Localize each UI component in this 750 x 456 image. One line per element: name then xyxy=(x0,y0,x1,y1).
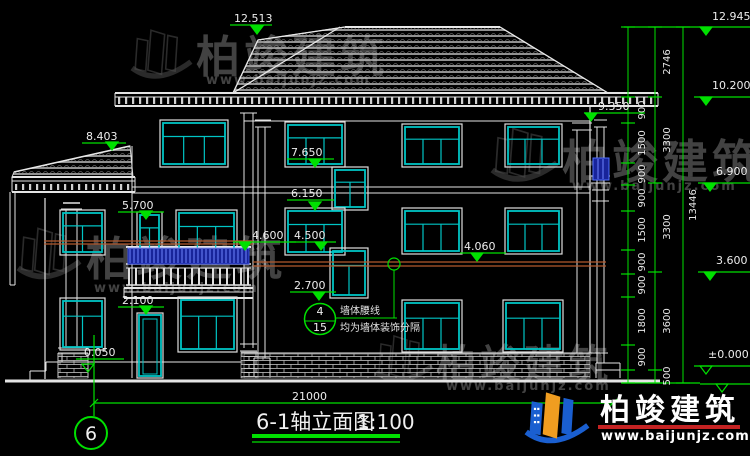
eave-dentil xyxy=(384,97,386,104)
level-flag: 12.945 xyxy=(624,10,750,35)
elevation-marker: 2.700 xyxy=(290,279,336,300)
eave-dentil xyxy=(113,184,115,190)
logo-url-text: www.baijunjz.com xyxy=(601,429,750,444)
eave-dentil xyxy=(167,97,169,104)
brick-plinth xyxy=(244,354,590,378)
elevation-triangle-icon xyxy=(704,272,716,280)
callout-note-line1: 墙体腰线 xyxy=(340,304,380,317)
eave-dentil xyxy=(300,97,302,104)
eave-dentil xyxy=(475,97,477,104)
level-flag: 3.600 xyxy=(698,254,750,280)
eave-dentil xyxy=(412,97,414,104)
elevation-marker: 5.700 xyxy=(118,199,164,219)
eave-dentil xyxy=(293,97,295,104)
eave-dentil xyxy=(244,97,246,104)
eave-dentil xyxy=(391,97,393,104)
callout-bottom-number: 15 xyxy=(313,321,327,334)
title-block: 6-1轴立面图1:1006 xyxy=(85,410,415,445)
elevation-text: 9.350 xyxy=(598,100,630,113)
eave-dentil xyxy=(356,97,358,104)
eave-dentil xyxy=(510,97,512,104)
eave-dentil xyxy=(160,97,162,104)
eave-dentil xyxy=(405,97,407,104)
eave-dentil xyxy=(524,97,526,104)
eave-dentil xyxy=(419,97,421,104)
eave-dentil xyxy=(461,97,463,104)
elevation-triangle-icon xyxy=(700,27,712,35)
callout-note-line2: 均为墙体装饰分隔 xyxy=(340,321,420,334)
cad-canvas: 柏竣建筑www.baijunjz.com柏竣建筑www.baijunjz.com… xyxy=(0,0,750,456)
flag-text: ±0.000 xyxy=(708,348,749,361)
window xyxy=(60,298,105,350)
elevation-text: 5.700 xyxy=(122,199,154,212)
elevation-text: 4.060 xyxy=(464,240,496,253)
eave-dentil xyxy=(349,97,351,104)
eave-dentil xyxy=(85,184,87,190)
eave-dentil xyxy=(335,97,337,104)
dim-text: 500 xyxy=(662,366,673,385)
roof-tile-area xyxy=(12,146,133,177)
entry-door xyxy=(137,313,163,378)
eave-dentil xyxy=(223,97,225,104)
dim-text: 3300 xyxy=(662,214,673,239)
elevation-marker: 8.403 xyxy=(82,130,126,150)
elevation-text: 2.100 xyxy=(122,294,154,307)
eave-dentil xyxy=(328,97,330,104)
elevation-text: 4.600 xyxy=(252,229,284,242)
eave-dentil xyxy=(377,97,379,104)
eave-dentil xyxy=(286,97,288,104)
eave-dentil xyxy=(426,97,428,104)
brand-logo: 柏竣建筑www.baijunjz.com xyxy=(526,392,750,444)
eave-dentil xyxy=(120,184,122,190)
dim-text: 3600 xyxy=(662,308,673,333)
downspout-collar-selected xyxy=(593,158,609,180)
annotation-circle xyxy=(388,258,400,270)
eave-dentil xyxy=(531,97,533,104)
window xyxy=(178,297,237,352)
eave-dentil xyxy=(587,97,589,104)
dim-text: 900 xyxy=(637,275,648,294)
eave-dentil xyxy=(132,97,134,104)
eave-dentil xyxy=(552,97,554,104)
elevation-marker: 9.350 xyxy=(584,100,645,121)
eave-dentil xyxy=(139,97,141,104)
eave-dentil xyxy=(181,97,183,104)
eave-dentil xyxy=(517,97,519,104)
eave-dentil xyxy=(503,97,505,104)
dim-text: 13446 xyxy=(688,189,699,221)
level-flag: ±0.000 xyxy=(694,348,750,374)
eave-dentil xyxy=(127,184,129,190)
roof-tile-area xyxy=(233,27,608,93)
dim-text: 1500 xyxy=(637,130,648,155)
eave-dentil xyxy=(230,97,232,104)
eave-dentil xyxy=(468,97,470,104)
eave-dentil xyxy=(566,97,568,104)
eave-dentil xyxy=(216,97,218,104)
eave-dentil xyxy=(99,184,101,190)
eave-dentil xyxy=(559,97,561,104)
elevation-triangle-icon xyxy=(471,253,483,261)
eave-dentil xyxy=(594,97,596,104)
cad-elevation-drawing: 柏竣建筑www.baijunjz.com柏竣建筑www.baijunjz.com… xyxy=(0,0,750,456)
eave-dentil xyxy=(237,97,239,104)
brand-building-icon xyxy=(132,30,191,76)
eave-dentil xyxy=(125,97,127,104)
balcony-railing-selected xyxy=(128,248,249,264)
dim-text: 1500 xyxy=(637,217,648,242)
eave-dentil xyxy=(489,97,491,104)
elevation-text: 6.150 xyxy=(291,187,323,200)
eave-dentil xyxy=(321,97,323,104)
drawing-scale: 1:100 xyxy=(357,410,415,434)
dim-text: 900 xyxy=(637,252,648,271)
elevation-triangle-icon xyxy=(700,366,712,374)
eave-dentil xyxy=(545,97,547,104)
elevation-marker: 4.060 xyxy=(460,240,506,261)
dim-text: 3300 xyxy=(662,127,673,152)
dim-text: 1800 xyxy=(637,308,648,333)
axis-bubble-number: 6 xyxy=(85,423,97,445)
window xyxy=(505,208,562,254)
eave-dentil xyxy=(307,97,309,104)
elevation-text: -0.050 xyxy=(80,346,115,359)
eave-dentil xyxy=(342,97,344,104)
window xyxy=(402,208,462,254)
elevation-marker: 4.500 xyxy=(290,229,336,250)
eave-dentil xyxy=(209,97,211,104)
eave-dentil xyxy=(15,184,17,190)
eave-dentil xyxy=(265,97,267,104)
eave-dentil xyxy=(258,97,260,104)
eave-dentil xyxy=(447,97,449,104)
dim-text: 900 xyxy=(637,347,648,366)
eave-dentil xyxy=(92,184,94,190)
elevation-text: 8.403 xyxy=(86,130,118,143)
eave-dentil xyxy=(398,97,400,104)
eave-dentil xyxy=(538,97,540,104)
elevation-triangle-icon xyxy=(309,159,321,167)
eave-dentil xyxy=(29,184,31,190)
belt-callout: 415墙体腰线均为墙体装饰分隔 xyxy=(313,304,420,334)
elevation-text: 2.700 xyxy=(294,279,326,292)
elevation-text: 7.650 xyxy=(291,146,323,159)
elevation-triangle-icon xyxy=(700,97,712,105)
elevation-triangle-icon xyxy=(716,384,728,392)
brand-building-icon xyxy=(526,392,588,440)
elevation-marker: 12.513 xyxy=(230,12,273,34)
overall-dimension-text: 21000 xyxy=(292,390,327,403)
eave-dentil xyxy=(195,97,197,104)
eave-dentil xyxy=(50,184,52,190)
eave-dentil xyxy=(78,184,80,190)
eave-dentil xyxy=(454,97,456,104)
elevation-triangle-icon xyxy=(309,202,321,210)
eave-dentil xyxy=(433,97,435,104)
eave-dentil xyxy=(440,97,442,104)
window xyxy=(160,120,228,167)
eave-dentil xyxy=(64,184,66,190)
flag-text: 10.200 xyxy=(712,79,750,92)
eave-dentil xyxy=(118,97,120,104)
flag-text: 12.945 xyxy=(712,10,750,23)
eave-dentil xyxy=(36,184,38,190)
eave-dentil xyxy=(43,184,45,190)
eave-dentil xyxy=(370,97,372,104)
eave-dentil xyxy=(279,97,281,104)
eave-dentil xyxy=(496,97,498,104)
flag-text: 3.600 xyxy=(716,254,748,267)
eave-dentil xyxy=(482,97,484,104)
eave-dentil xyxy=(650,97,652,104)
logo-brand-text: 柏竣建筑 xyxy=(600,393,740,428)
eave-dentil xyxy=(251,97,253,104)
elevation-text: 4.500 xyxy=(294,229,326,242)
eave-dentil xyxy=(153,97,155,104)
flag-text: 6.900 xyxy=(716,165,748,178)
dim-text: 900 xyxy=(637,188,648,207)
eave-dentil xyxy=(188,97,190,104)
eave-dentil xyxy=(314,97,316,104)
callout-top-number: 4 xyxy=(317,305,324,318)
elevation-text: 12.513 xyxy=(234,12,273,25)
eave-dentil xyxy=(22,184,24,190)
window xyxy=(332,167,368,210)
level-flag xyxy=(700,384,750,392)
dim-text: 900 xyxy=(637,100,648,119)
eave-dentil xyxy=(57,184,59,190)
elevation-marker: 6.150 xyxy=(287,187,334,210)
eave-dentil xyxy=(202,97,204,104)
eave-dentil xyxy=(106,184,108,190)
eave-dentil xyxy=(573,97,575,104)
eave-dentil xyxy=(272,97,274,104)
level-flag: 10.200 xyxy=(694,79,750,105)
eave-dentil xyxy=(71,184,73,190)
eave-dentil xyxy=(146,97,148,104)
eave-dentil xyxy=(174,97,176,104)
elevation-triangle-icon xyxy=(315,242,327,250)
eave-dentil xyxy=(580,97,582,104)
eave-dentil xyxy=(363,97,365,104)
elevation-triangle-icon xyxy=(313,292,325,300)
brick-plinth xyxy=(241,352,258,378)
dim-text: 900 xyxy=(637,164,648,183)
window xyxy=(402,124,462,167)
dim-text: 2746 xyxy=(662,49,673,74)
